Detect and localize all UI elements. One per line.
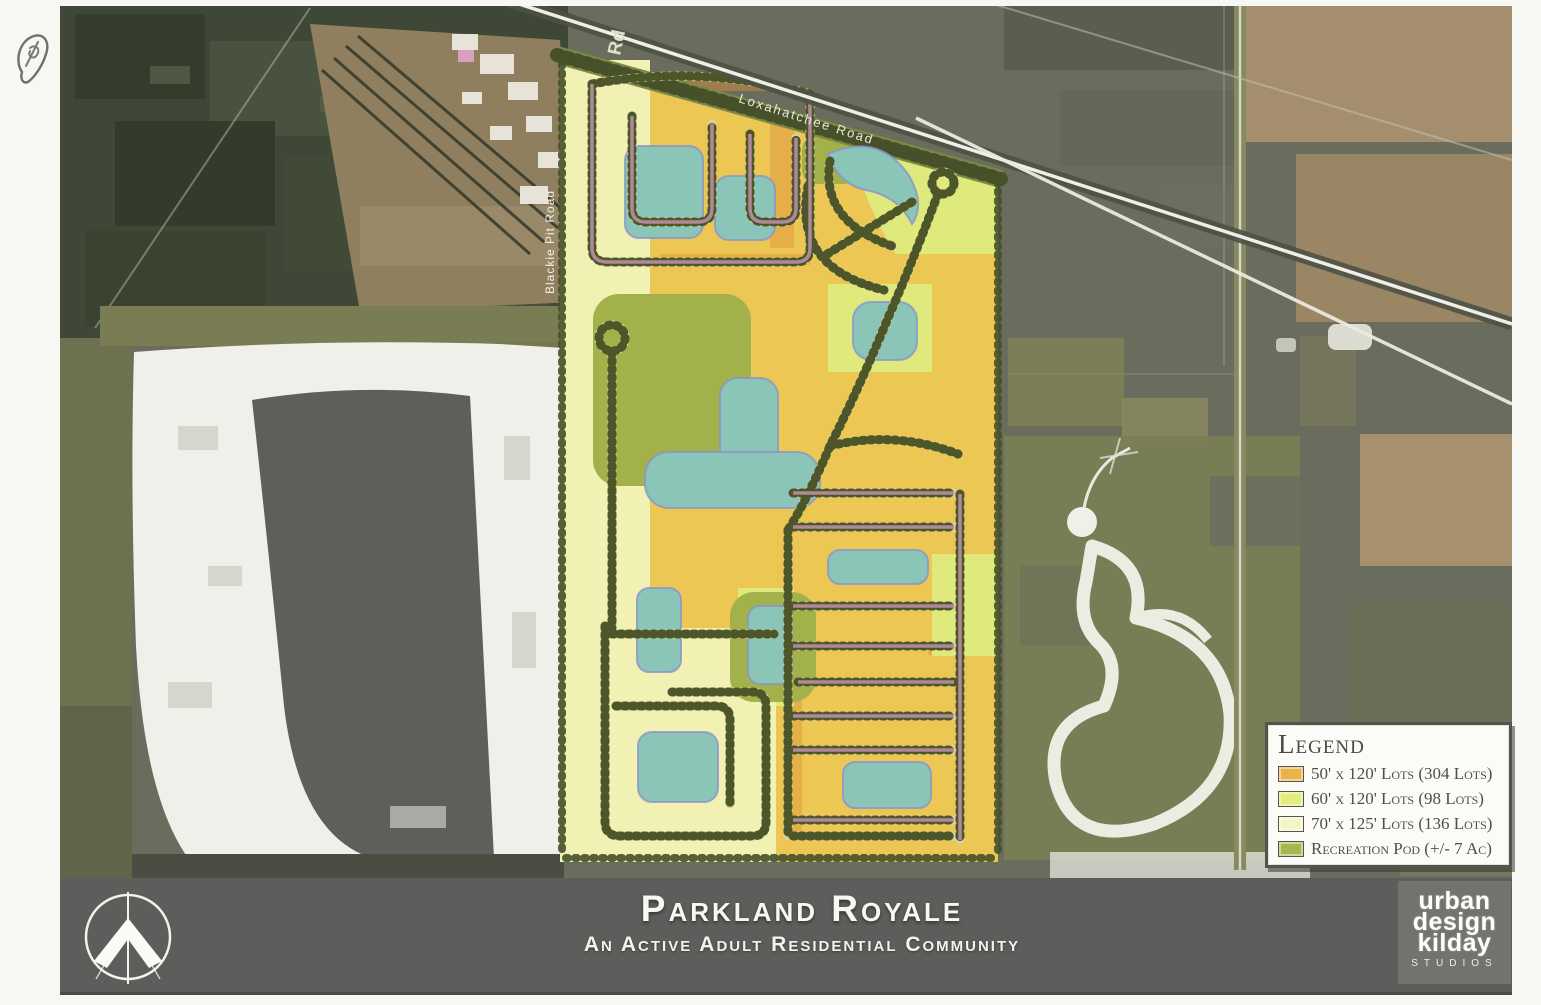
logo-line: kilday [1398,933,1511,954]
page-title: Parkland Royale [76,888,1528,930]
footer-bar: Parkland Royale An Active Adult Resident… [60,878,1512,995]
legend-row: 60' x 120' Lots (98 Lots) [1278,789,1499,809]
legend-label: 50' x 120' Lots (304 Lots) [1311,764,1492,784]
legend-row: 70' x 125' Lots (136 Lots) [1278,814,1499,834]
scanned-site-plan-page: Loxahatchee Road Blackie Pit Road Rd Par… [0,0,1541,1005]
logo-studios-line: studios [1398,958,1511,969]
page-subtitle: An Active Adult Residential Community [76,933,1528,957]
legend-panel: Legend 50' x 120' Lots (304 Lots) 60' x … [1265,722,1512,868]
legend-label: 70' x 125' Lots (136 Lots) [1311,814,1492,834]
legend-swatch-70ft-lots [1278,816,1304,832]
legend-row: Recreation Pod (+/- 7 Ac) [1278,839,1499,859]
legend-label: 60' x 120' Lots (98 Lots) [1311,789,1484,809]
legend-swatch-60ft-lots [1278,791,1304,807]
legend-row: 50' x 120' Lots (304 Lots) [1278,764,1499,784]
handwritten-mark-icon [8,24,54,92]
site-plan [557,55,1001,862]
legend-swatch-recreation-pod [1278,841,1304,857]
legend-title: Legend [1278,729,1499,759]
title-block: Parkland Royale An Active Adult Resident… [76,888,1528,957]
legend-swatch-50ft-lots [1278,766,1304,782]
legend-label: Recreation Pod (+/- 7 Ac) [1311,839,1492,859]
road-label-blackie-pit: Blackie Pit Road [543,190,557,294]
logo-urban-design-kilday: urban design kilday studios [1398,881,1511,984]
